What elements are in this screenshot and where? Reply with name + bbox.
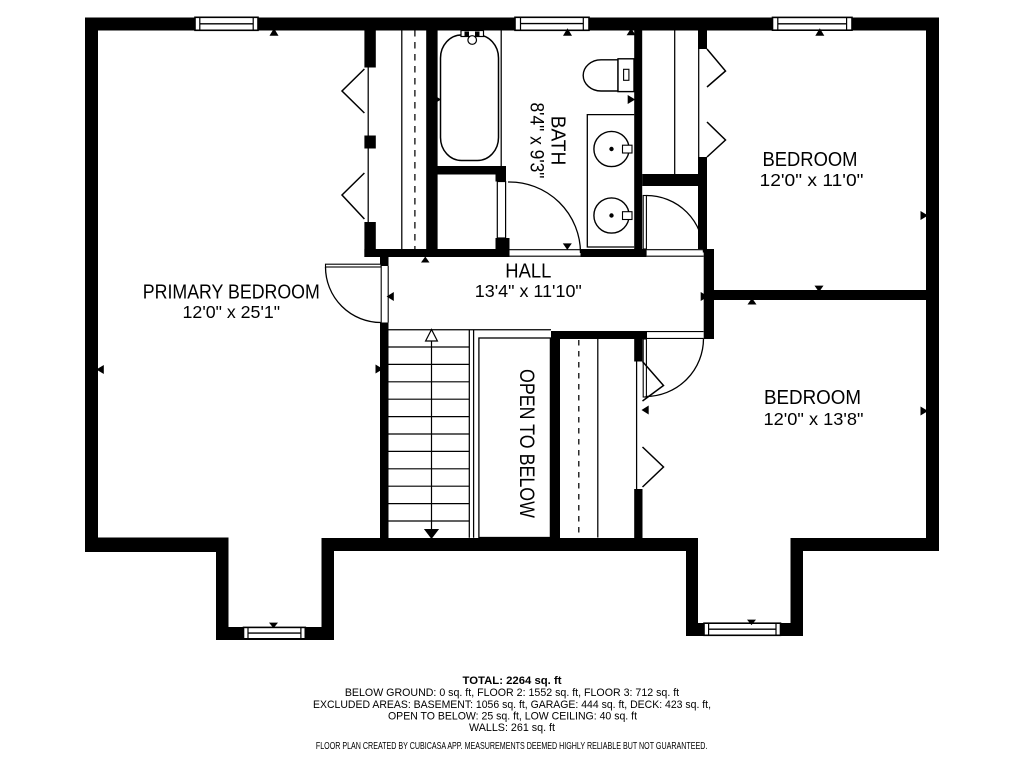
svg-text:BEDROOM: BEDROOM	[763, 149, 858, 171]
svg-text:12'0" x 13'8": 12'0" x 13'8"	[764, 409, 864, 429]
svg-text:12'0" x 25'1": 12'0" x 25'1"	[183, 302, 281, 322]
svg-text:HALL: HALL	[505, 261, 551, 283]
svg-text:OPEN TO BELOW: OPEN TO BELOW	[515, 369, 538, 518]
svg-text:BEDROOM: BEDROOM	[764, 387, 861, 409]
svg-text:BATH: BATH	[547, 116, 569, 166]
svg-text:FLOOR PLAN CREATED BY CUBICASA: FLOOR PLAN CREATED BY CUBICASA APP. MEAS…	[316, 740, 708, 752]
svg-text:WALLS: 261 sq. ft: WALLS: 261 sq. ft	[469, 722, 555, 734]
svg-text:8'4" x 9'3": 8'4" x 9'3"	[526, 103, 547, 179]
svg-text:13'4" x 11'10": 13'4" x 11'10"	[475, 281, 582, 301]
svg-text:PRIMARY BEDROOM: PRIMARY BEDROOM	[143, 282, 320, 304]
svg-text:12'0" x 11'0": 12'0" x 11'0"	[760, 170, 864, 190]
svg-text:BELOW GROUND: 0 sq. ft, FLOOR: BELOW GROUND: 0 sq. ft, FLOOR 2: 1552 sq…	[345, 687, 679, 699]
svg-text:TOTAL: 2264 sq. ft: TOTAL: 2264 sq. ft	[463, 675, 562, 687]
svg-text:OPEN TO BELOW: 25 sq. ft, LOW: OPEN TO BELOW: 25 sq. ft, LOW CEILING: 4…	[388, 710, 637, 722]
svg-text:EXCLUDED AREAS: BASEMENT: 1056: EXCLUDED AREAS: BASEMENT: 1056 sq. ft, G…	[313, 699, 711, 711]
